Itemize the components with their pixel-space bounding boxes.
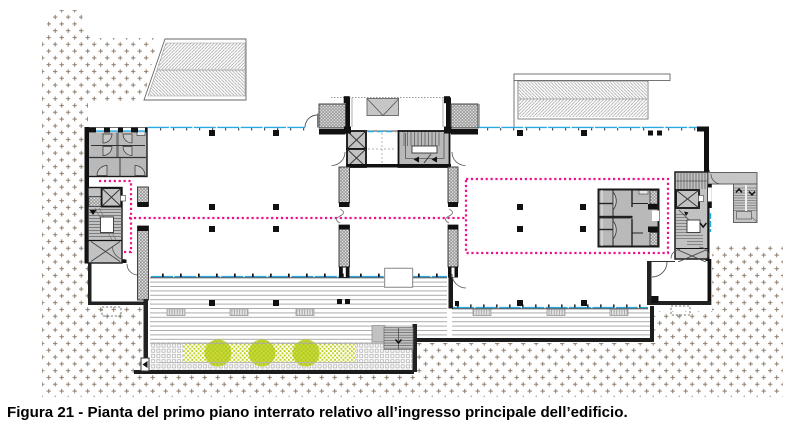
svg-text:Figura 21 - Pianta del primo p: Figura 21 - Pianta del primo piano inter… xyxy=(7,404,628,421)
